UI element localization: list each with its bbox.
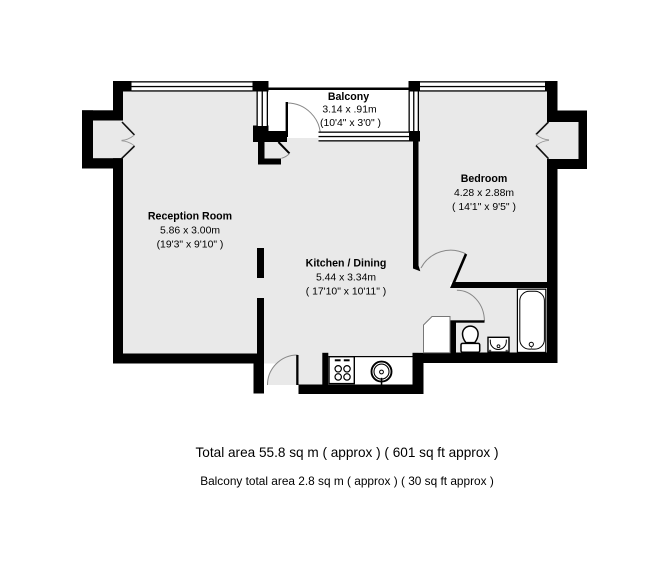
svg-text:( 14'1" x 9'5" ): ( 14'1" x 9'5" ) xyxy=(452,202,516,213)
svg-text:Total area 55.8 sq m ( approx: Total area 55.8 sq m ( approx ) ( 601 sq… xyxy=(196,445,499,460)
svg-text:5.44 x 3.34m: 5.44 x 3.34m xyxy=(316,273,376,284)
svg-text:Bedroom: Bedroom xyxy=(461,173,508,185)
svg-text:Reception Room: Reception Room xyxy=(148,211,232,223)
svg-text:(10'4" x 3'0" ): (10'4" x 3'0" ) xyxy=(320,118,381,129)
svg-text:(19'3" x 9'10" ): (19'3" x 9'10" ) xyxy=(157,240,224,251)
svg-text:5.86 x 3.00m: 5.86 x 3.00m xyxy=(160,226,220,237)
svg-text:3.14 x .91m: 3.14 x .91m xyxy=(322,105,376,116)
svg-text:Balcony: Balcony xyxy=(328,91,369,103)
svg-text:4.28 x 2.88m: 4.28 x 2.88m xyxy=(454,188,514,199)
svg-text:( 17'10" x 10'11" ): ( 17'10" x 10'11" ) xyxy=(306,287,386,298)
svg-text:Balcony total area 2.8 sq m (: Balcony total area 2.8 sq m ( approx ) (… xyxy=(200,474,494,488)
svg-text:Kitchen / Dining: Kitchen / Dining xyxy=(306,258,387,270)
